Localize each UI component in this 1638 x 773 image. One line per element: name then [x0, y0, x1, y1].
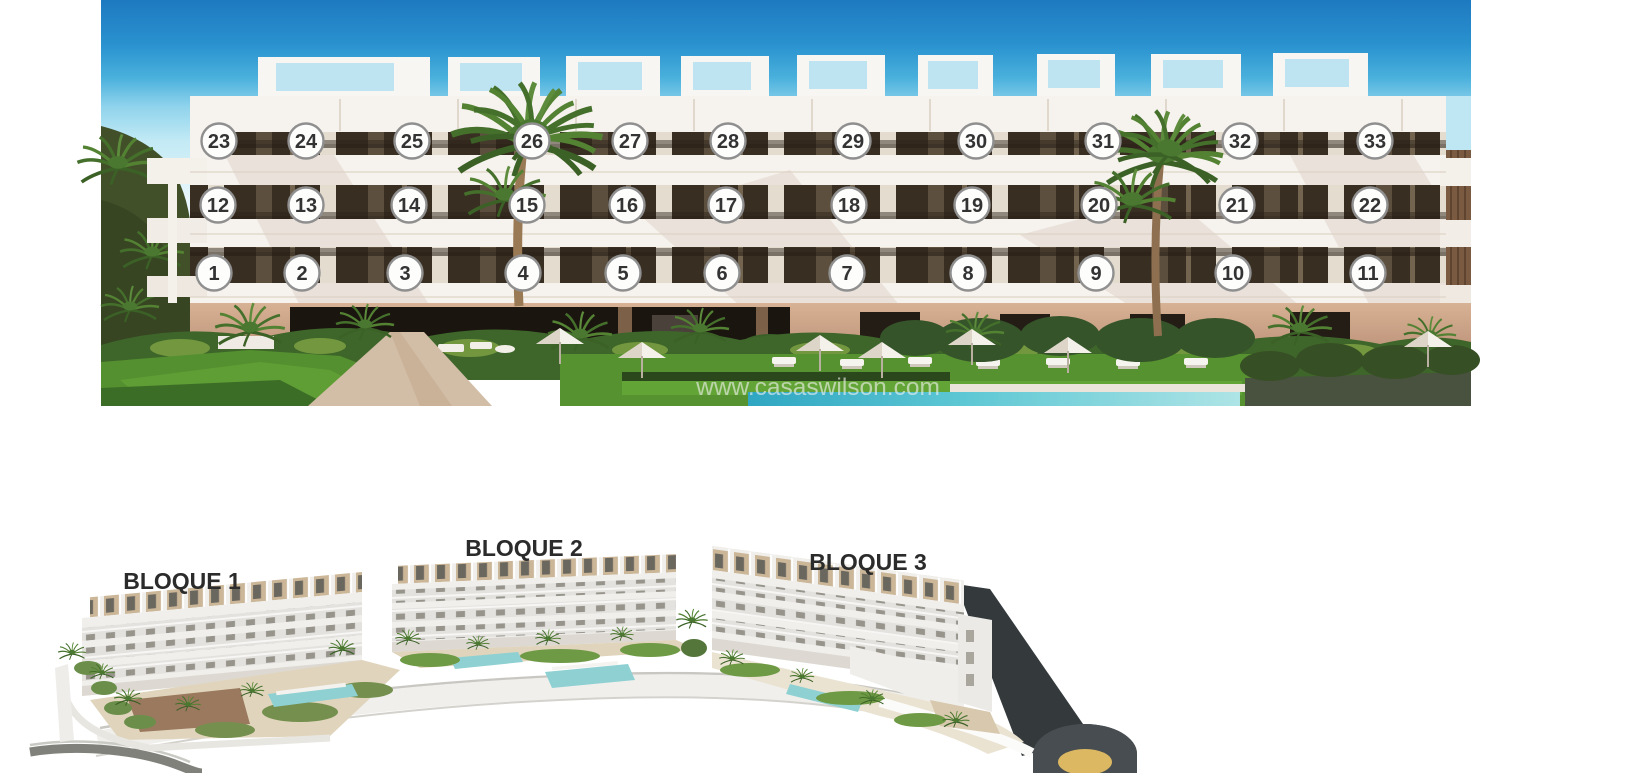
svg-text:6: 6	[716, 263, 727, 285]
svg-text:19: 19	[961, 195, 983, 217]
svg-text:12: 12	[207, 195, 229, 217]
svg-text:BLOQUE 1: BLOQUE 1	[123, 568, 241, 594]
svg-text:BLOQUE 2: BLOQUE 2	[465, 535, 583, 561]
svg-text:2: 2	[296, 263, 307, 285]
svg-text:15: 15	[516, 195, 538, 217]
svg-text:18: 18	[838, 195, 860, 217]
svg-text:27: 27	[619, 131, 641, 153]
svg-text:11: 11	[1357, 263, 1378, 285]
svg-text:21: 21	[1226, 195, 1248, 217]
svg-text:24: 24	[295, 131, 318, 153]
svg-text:14: 14	[398, 195, 421, 217]
svg-text:8: 8	[962, 263, 973, 285]
svg-text:10: 10	[1222, 263, 1244, 285]
svg-text:32: 32	[1229, 131, 1251, 153]
svg-text:3: 3	[399, 263, 410, 285]
svg-text:16: 16	[616, 195, 638, 217]
svg-text:www.casaswilson.com: www.casaswilson.com	[695, 374, 940, 401]
svg-text:17: 17	[715, 195, 737, 217]
svg-text:28: 28	[717, 131, 739, 153]
svg-text:31: 31	[1092, 131, 1114, 153]
svg-text:33: 33	[1364, 131, 1386, 153]
svg-text:13: 13	[295, 195, 317, 217]
svg-text:5: 5	[617, 263, 628, 285]
svg-text:20: 20	[1088, 195, 1110, 217]
svg-text:9: 9	[1090, 263, 1101, 285]
svg-text:26: 26	[521, 131, 543, 153]
svg-text:22: 22	[1359, 195, 1381, 217]
svg-text:BLOQUE 3: BLOQUE 3	[809, 549, 927, 575]
svg-text:1: 1	[208, 263, 219, 285]
svg-text:4: 4	[517, 263, 529, 285]
svg-text:7: 7	[841, 263, 852, 285]
svg-text:25: 25	[401, 131, 423, 153]
svg-text:30: 30	[965, 131, 987, 153]
svg-text:29: 29	[842, 131, 864, 153]
svg-text:23: 23	[208, 131, 230, 153]
